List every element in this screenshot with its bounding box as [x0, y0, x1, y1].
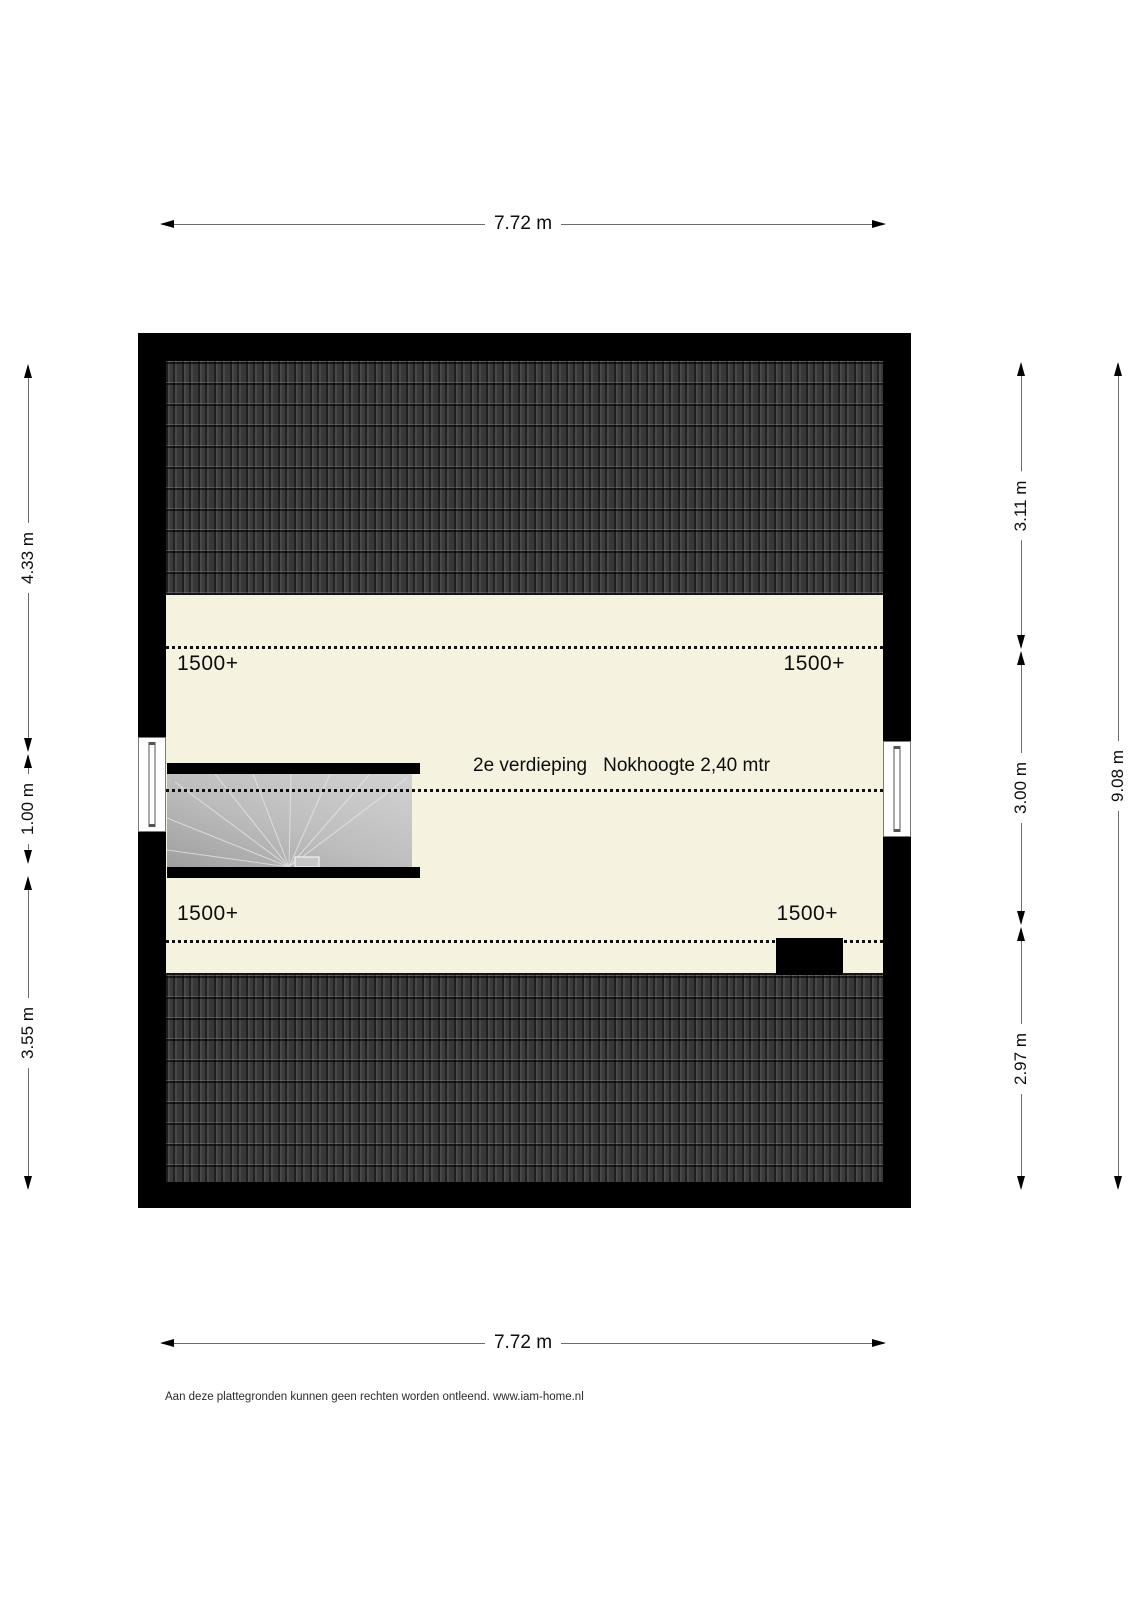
roof-surface-bottom: [166, 973, 883, 1182]
dimension-left-1: 4.33 m: [6, 364, 50, 752]
dimension-label: 3.00 m: [1011, 753, 1031, 823]
room-caption: 2e verdieping Nokhoogte 2,40 mtr: [473, 755, 770, 777]
stair-wall-bottom: [167, 867, 420, 878]
arrowhead-left-icon: [160, 220, 174, 228]
arrowhead-down-icon: [24, 1176, 32, 1190]
height-mark-top-right: 1500+: [784, 652, 845, 676]
height-mark-bottom-right: 1500+: [777, 902, 838, 926]
dimension-top: 7.72 m: [160, 215, 886, 233]
dimension-label: 7.72 m: [485, 213, 561, 235]
arrowhead-up-icon: [1017, 362, 1025, 376]
floor-label: 2e verdieping: [473, 755, 587, 777]
dimension-label: 2.97 m: [1011, 1024, 1031, 1094]
building-interior: 1500+ 1500+ 1500+ 1500+ 2e verdieping No…: [166, 361, 883, 1180]
dimension-label: 1.00 m: [18, 774, 38, 844]
dimension-right-3: 2.97 m: [999, 927, 1043, 1190]
arrowhead-down-icon: [24, 738, 32, 752]
ridge-line: [166, 789, 883, 792]
arrowhead-up-icon: [1114, 362, 1122, 376]
arrowhead-down-icon: [1114, 1176, 1122, 1190]
arrowhead-up-icon: [1017, 927, 1025, 941]
dimension-right-total: 9.08 m: [1096, 362, 1140, 1190]
height-mark-top-left: 1500+: [177, 652, 238, 676]
window-left: [138, 737, 166, 832]
arrowhead-right-icon: [872, 220, 886, 228]
dimension-left-2: 1.00 m: [6, 754, 50, 864]
ridge-height-label: Nokhoogte 2,40 mtr: [603, 755, 770, 777]
arrowhead-left-icon: [160, 1339, 174, 1347]
floorplan-page: 7.72 m 1500+ 1500+ 1500+ 1500+ 2e verdie…: [0, 0, 1145, 1620]
arrowhead-down-icon: [24, 850, 32, 864]
dimension-right-2: 3.00 m: [999, 651, 1043, 925]
window-right: [883, 741, 911, 837]
arrowhead-up-icon: [1017, 651, 1025, 665]
dimension-left-3: 3.55 m: [6, 876, 50, 1190]
dimension-label: 7.72 m: [485, 1332, 561, 1354]
dimension-label: 3.11 m: [1011, 471, 1031, 540]
arrowhead-right-icon: [872, 1339, 886, 1347]
dimension-label: 4.33 m: [18, 523, 38, 593]
dimension-bottom: 7.72 m: [160, 1334, 886, 1352]
arrowhead-down-icon: [1017, 1176, 1025, 1190]
height-mark-bottom-left: 1500+: [177, 902, 238, 926]
arrowhead-down-icon: [1017, 635, 1025, 649]
arrowhead-up-icon: [24, 876, 32, 890]
window-frame-icon: [894, 746, 901, 832]
arrowhead-up-icon: [24, 754, 32, 768]
disclaimer-text: Aan deze plattegronden kunnen geen recht…: [165, 1391, 584, 1403]
arrowhead-up-icon: [24, 364, 32, 378]
dimension-label: 3.55 m: [18, 998, 38, 1068]
dimension-right-1: 3.11 m: [999, 362, 1043, 649]
window-frame-icon: [149, 742, 156, 827]
dimension-label: 9.08 m: [1108, 741, 1128, 811]
building-outline: 1500+ 1500+ 1500+ 1500+ 2e verdieping No…: [138, 333, 911, 1208]
stair-wall-top: [167, 763, 420, 774]
roof-surface-top: [166, 361, 883, 595]
chimney: [776, 938, 843, 975]
arrowhead-down-icon: [1017, 911, 1025, 925]
headroom-line-top: [166, 646, 883, 649]
stairs: [167, 774, 412, 867]
